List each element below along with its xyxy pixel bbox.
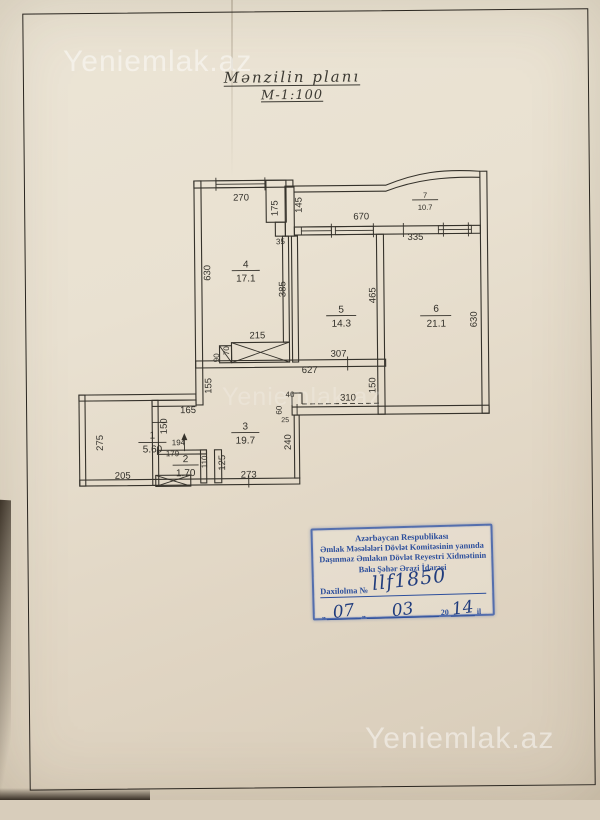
- dimension-label: 70: [222, 346, 231, 356]
- entry-number-field: Daxilolma № llf1850: [320, 577, 486, 598]
- dimension-label: 465: [367, 287, 378, 303]
- svg-text:10.7: 10.7: [418, 203, 433, 212]
- dimension-label: 90: [212, 353, 221, 363]
- svg-text:7: 7: [423, 191, 427, 200]
- dimension-label: 307: [331, 349, 347, 360]
- dimension-label: 670: [353, 211, 369, 222]
- svg-text:14.3: 14.3: [331, 319, 351, 330]
- svg-text:4: 4: [243, 259, 249, 270]
- svg-text:19.7: 19.7: [236, 435, 256, 446]
- photo-dark-edge-bottom: [0, 788, 150, 800]
- dimension-label: 335: [407, 232, 423, 243]
- dimension-label: 205: [115, 471, 131, 482]
- room-label: 3 19.7: [231, 421, 259, 446]
- dimension-label: 630: [202, 265, 213, 281]
- dimension-label: 25: [281, 417, 289, 424]
- svg-text:1: 1: [150, 430, 156, 441]
- dimension-label: 240: [283, 434, 294, 450]
- dimension-label: 155: [203, 378, 214, 394]
- watermark-top-left: Yeniemlak.az: [63, 45, 252, 79]
- watermark-middle: Yeniemlak.az: [222, 383, 382, 412]
- dimension-label: 175: [270, 200, 281, 216]
- dimension-ticks: [150, 175, 471, 488]
- stamp-date-row: „ 07 „ 03 20 14 il: [320, 596, 486, 620]
- dimension-label: 270: [233, 192, 249, 203]
- svg-text:5.60: 5.60: [143, 444, 163, 455]
- svg-text:1.70: 1.70: [176, 468, 196, 479]
- dimension-label: 125: [217, 455, 228, 471]
- dimension-label: 194: [172, 438, 186, 447]
- svg-text:21.1: 21.1: [426, 319, 446, 330]
- room-label: 4 17.1: [232, 259, 260, 284]
- year-prefix: 20: [441, 608, 449, 617]
- room-label: 5 14.3: [326, 304, 356, 329]
- photographed-document: { "watermark": "Yeniemlak.az", "title": …: [0, 0, 600, 800]
- handwritten-year: 14: [451, 597, 475, 620]
- entry-number-label: Daxilolma №: [320, 585, 368, 596]
- room-label: 6 21.1: [420, 304, 451, 330]
- svg-text:2: 2: [183, 454, 189, 465]
- dimension-label: 110: [200, 455, 209, 468]
- registry-stamp: Azərbaycan Respublikası Əmlak Məsələləri…: [310, 524, 494, 621]
- svg-text:3: 3: [242, 421, 248, 432]
- photo-dark-edge-left: [0, 500, 11, 820]
- year-suffix: il: [477, 607, 482, 616]
- dimension-label: 145: [294, 197, 305, 213]
- watermark-bottom-right: Yeniemlak.az: [365, 722, 554, 756]
- room-label: 7 10.7: [412, 191, 438, 212]
- handwritten-month: 03: [391, 599, 415, 622]
- dimension-label: 275: [95, 435, 106, 451]
- quote-mark: „: [362, 610, 366, 619]
- year-slot: 14: [450, 601, 474, 617]
- dimension-label: 35: [276, 237, 286, 246]
- dimension-label: 150: [159, 418, 170, 434]
- svg-text:5: 5: [338, 305, 344, 316]
- day-slot: 07: [327, 605, 361, 621]
- handwritten-day: 07: [332, 601, 356, 624]
- svg-text:6: 6: [433, 304, 439, 315]
- dimension-label: 273: [241, 469, 257, 480]
- dimension-label: 165: [180, 405, 196, 416]
- svg-text:17.1: 17.1: [236, 273, 256, 284]
- quote-mark: „: [322, 611, 326, 620]
- dimension-label: 179: [166, 449, 180, 458]
- dimension-label: 215: [249, 330, 265, 341]
- dimension-label: 630: [469, 311, 480, 327]
- dimension-label: 627: [302, 365, 318, 376]
- month-slot: 03: [367, 602, 439, 619]
- dimension-label: 385: [277, 281, 288, 297]
